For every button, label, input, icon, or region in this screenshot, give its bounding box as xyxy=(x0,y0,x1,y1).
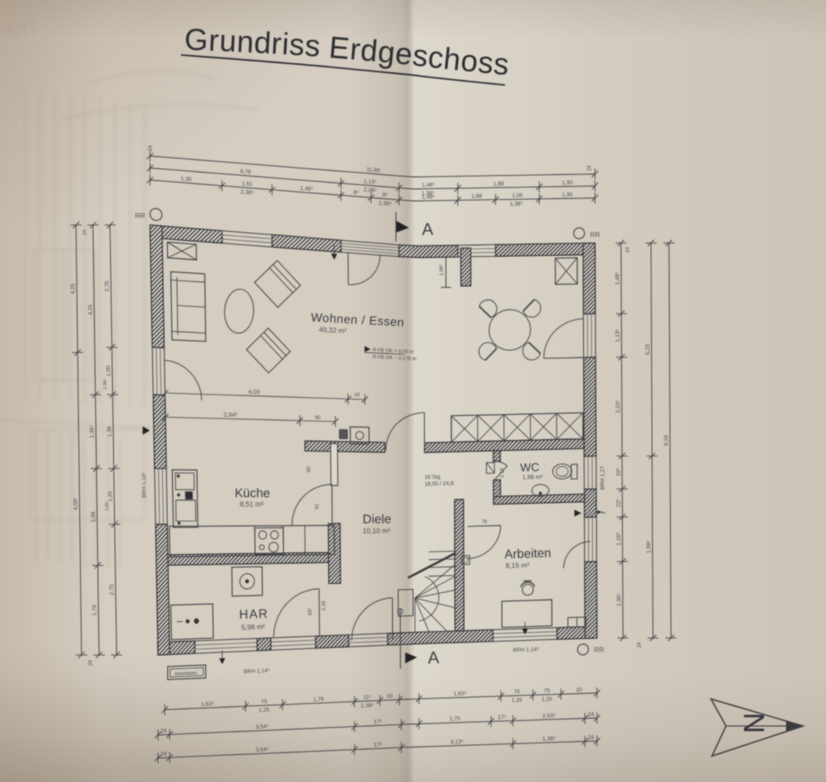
svg-text:1,25: 1,25 xyxy=(108,491,114,502)
svg-text:24: 24 xyxy=(148,145,154,151)
svg-text:17⁵: 17⁵ xyxy=(374,718,383,725)
svg-text:1,38⁵: 1,38⁵ xyxy=(542,735,555,742)
svg-text:1,88: 1,88 xyxy=(91,512,97,523)
svg-text:1,30: 1,30 xyxy=(562,180,573,186)
svg-text:24: 24 xyxy=(587,165,593,171)
svg-text:22⁵: 22⁵ xyxy=(615,499,622,507)
svg-text:11⁵: 11⁵ xyxy=(363,694,371,701)
svg-text:75: 75 xyxy=(261,699,267,705)
svg-text:24: 24 xyxy=(161,728,167,734)
svg-text:1,98 m²: 1,98 m² xyxy=(522,475,542,482)
svg-text:WC: WC xyxy=(520,462,539,474)
svg-text:10,10 m²: 10,10 m² xyxy=(363,528,391,535)
svg-text:5,23: 5,23 xyxy=(645,344,651,355)
svg-text:1,63⁵: 1,63⁵ xyxy=(453,690,466,697)
svg-text:1,88⁵: 1,88⁵ xyxy=(439,264,445,276)
svg-text:4,09⁵: 4,09⁵ xyxy=(72,497,79,510)
svg-text:1,76: 1,76 xyxy=(313,697,324,703)
svg-text:3,54⁵: 3,54⁵ xyxy=(255,723,268,731)
svg-text:Arbeiten: Arbeiten xyxy=(504,546,551,561)
svg-text:4,25: 4,25 xyxy=(88,304,94,315)
svg-text:75: 75 xyxy=(544,688,550,694)
svg-text:2,38⁵: 2,38⁵ xyxy=(363,186,377,194)
svg-text:1,39: 1,39 xyxy=(107,426,113,437)
svg-text:11,99: 11,99 xyxy=(366,167,380,174)
svg-text:1,51: 1,51 xyxy=(241,181,252,188)
svg-text:5,98 m²: 5,98 m² xyxy=(241,624,266,632)
svg-text:Grundriss Erdgeschoss: Grundriss Erdgeschoss xyxy=(184,23,511,82)
svg-text:2,63⁵: 2,63⁵ xyxy=(542,712,555,719)
svg-text:24: 24 xyxy=(82,229,88,235)
svg-text:1,38⁵: 1,38⁵ xyxy=(510,200,523,207)
svg-text:2,38⁵: 2,38⁵ xyxy=(240,188,254,196)
svg-text:4,00: 4,00 xyxy=(248,390,261,396)
svg-text:8,15 m²: 8,15 m² xyxy=(506,562,531,570)
svg-text:1,96³: 1,96³ xyxy=(646,541,652,554)
svg-text:8,51 m²: 8,51 m² xyxy=(240,501,264,508)
svg-text:1,75: 1,75 xyxy=(450,716,461,722)
svg-text:8⁵: 8⁵ xyxy=(382,191,388,198)
svg-text:1,13⁵: 1,13⁵ xyxy=(363,178,377,186)
svg-text:18,50 / 24,8: 18,50 / 24,8 xyxy=(424,481,453,488)
svg-text:BRH 1,14⁵: BRH 1,14⁵ xyxy=(140,472,147,498)
svg-text:24: 24 xyxy=(625,247,631,253)
svg-text:1,88: 1,88 xyxy=(471,194,482,200)
svg-text:RR: RR xyxy=(594,647,604,654)
svg-text:24: 24 xyxy=(588,735,594,741)
svg-text:1,38⁵: 1,38⁵ xyxy=(378,199,392,207)
svg-text:2,18: 2,18 xyxy=(321,601,327,611)
svg-text:1,76: 1,76 xyxy=(92,605,98,616)
svg-text:1,06: 1,06 xyxy=(512,193,523,199)
svg-text:1,30: 1,30 xyxy=(180,176,191,183)
svg-text:RR: RR xyxy=(590,232,600,239)
svg-text:24: 24 xyxy=(161,751,167,757)
svg-text:88⁵: 88⁵ xyxy=(307,608,313,616)
svg-text:1,48⁵: 1,48⁵ xyxy=(300,185,314,193)
svg-text:10: 10 xyxy=(576,687,582,693)
svg-text:75: 75 xyxy=(514,689,520,695)
svg-text:A: A xyxy=(428,648,441,667)
svg-text:8⁵: 8⁵ xyxy=(353,189,359,196)
svg-text:HAR: HAR xyxy=(239,607,269,622)
svg-text:1,36⁵: 1,36⁵ xyxy=(616,593,623,606)
svg-text:24: 24 xyxy=(88,660,94,666)
svg-text:30: 30 xyxy=(386,694,392,700)
svg-text:24: 24 xyxy=(588,712,594,718)
svg-text:1,25: 1,25 xyxy=(542,697,553,703)
svg-text:2,18: 2,18 xyxy=(499,468,505,478)
svg-text:A: A xyxy=(422,220,434,239)
svg-text:4,25: 4,25 xyxy=(71,283,77,294)
svg-text:4,13⁵: 4,13⁵ xyxy=(450,738,463,745)
svg-text:80: 80 xyxy=(306,466,312,472)
svg-text:1,16³: 1,16³ xyxy=(616,533,622,546)
svg-text:2,94⁵: 2,94⁵ xyxy=(223,412,238,419)
svg-text:1,25: 1,25 xyxy=(259,707,270,713)
svg-text:Abstellplatz: Abstellplatz xyxy=(174,670,198,676)
svg-text:1,13⁵: 1,13⁵ xyxy=(614,329,621,342)
svg-text:BRH 1,14⁵: BRH 1,14⁵ xyxy=(243,667,269,675)
svg-text:2,23⁵: 2,23⁵ xyxy=(615,400,622,413)
svg-text:1,88: 1,88 xyxy=(493,181,504,187)
svg-text:2,75: 2,75 xyxy=(105,281,111,292)
svg-text:Wohnen / Essen: Wohnen / Essen xyxy=(311,310,405,329)
svg-text:RR: RR xyxy=(135,213,145,220)
svg-text:16 Stg: 16 Stg xyxy=(424,474,440,480)
svg-text:N: N xyxy=(737,713,769,734)
svg-text:40,32 m²: 40,32 m² xyxy=(319,327,348,335)
svg-text:1,63⁵: 1,63⁵ xyxy=(201,700,214,708)
svg-text:2,38⁵: 2,38⁵ xyxy=(361,702,374,710)
svg-text:80: 80 xyxy=(315,415,321,421)
svg-text:2,75: 2,75 xyxy=(109,584,115,595)
svg-text:R FB OK − 0,175 m: R FB OK − 0,175 m xyxy=(373,354,417,362)
svg-text:1,48⁵: 1,48⁵ xyxy=(422,181,435,188)
svg-text:1,48⁵: 1,48⁵ xyxy=(422,193,435,200)
svg-text:1,00: 1,00 xyxy=(104,502,109,511)
svg-text:1,39⁵: 1,39⁵ xyxy=(89,425,96,438)
svg-text:2,38⁵: 2,38⁵ xyxy=(102,379,107,390)
svg-text:BRH 1,14⁵: BRH 1,14⁵ xyxy=(513,646,539,654)
svg-text:1,00: 1,00 xyxy=(106,366,112,377)
svg-text:1,48⁵: 1,48⁵ xyxy=(614,272,621,285)
svg-text:17⁵: 17⁵ xyxy=(374,741,383,748)
svg-text:10³: 10³ xyxy=(616,468,622,476)
svg-text:9,18: 9,18 xyxy=(664,435,670,446)
svg-text:Diele: Diele xyxy=(363,512,392,526)
svg-text:1,30: 1,30 xyxy=(562,192,573,198)
svg-text:92: 92 xyxy=(314,504,320,510)
svg-text:BRH 1,27: BRH 1,27 xyxy=(600,466,606,490)
svg-text:6,76: 6,76 xyxy=(240,169,251,176)
svg-text:1,25: 1,25 xyxy=(512,698,523,704)
svg-text:Küche: Küche xyxy=(235,486,271,500)
svg-text:3,54⁵: 3,54⁵ xyxy=(255,746,268,754)
svg-text:76: 76 xyxy=(481,519,487,525)
svg-text:17⁵: 17⁵ xyxy=(498,714,507,721)
svg-text:42: 42 xyxy=(354,392,360,398)
svg-text:24: 24 xyxy=(637,642,643,648)
